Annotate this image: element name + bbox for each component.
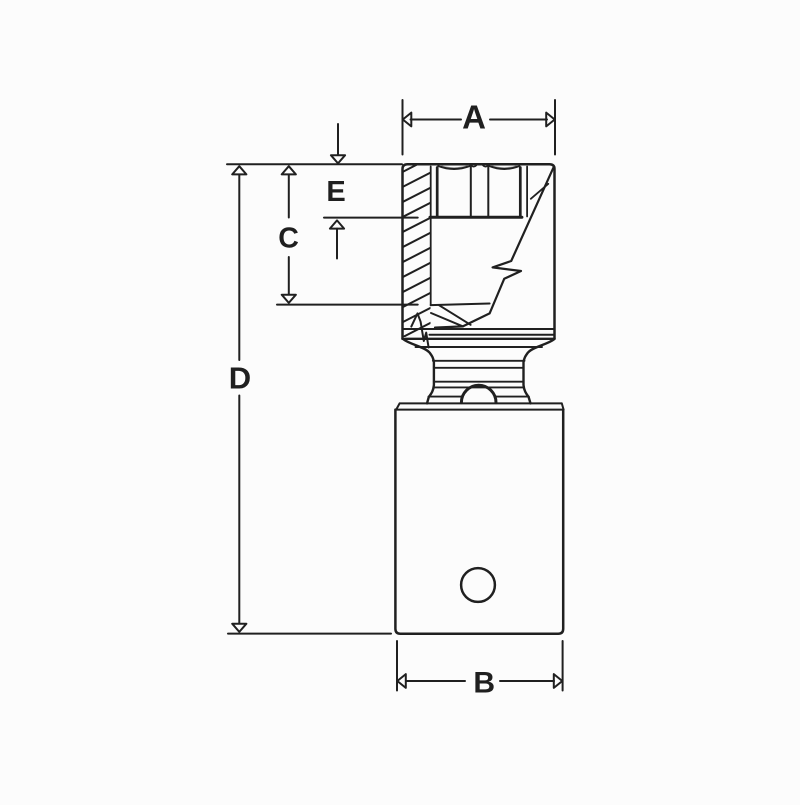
svg-text:A: A [462,99,486,136]
svg-text:E: E [326,176,345,208]
svg-text:B: B [473,667,495,700]
svg-text:C: C [278,223,299,255]
svg-text:D: D [229,360,251,395]
